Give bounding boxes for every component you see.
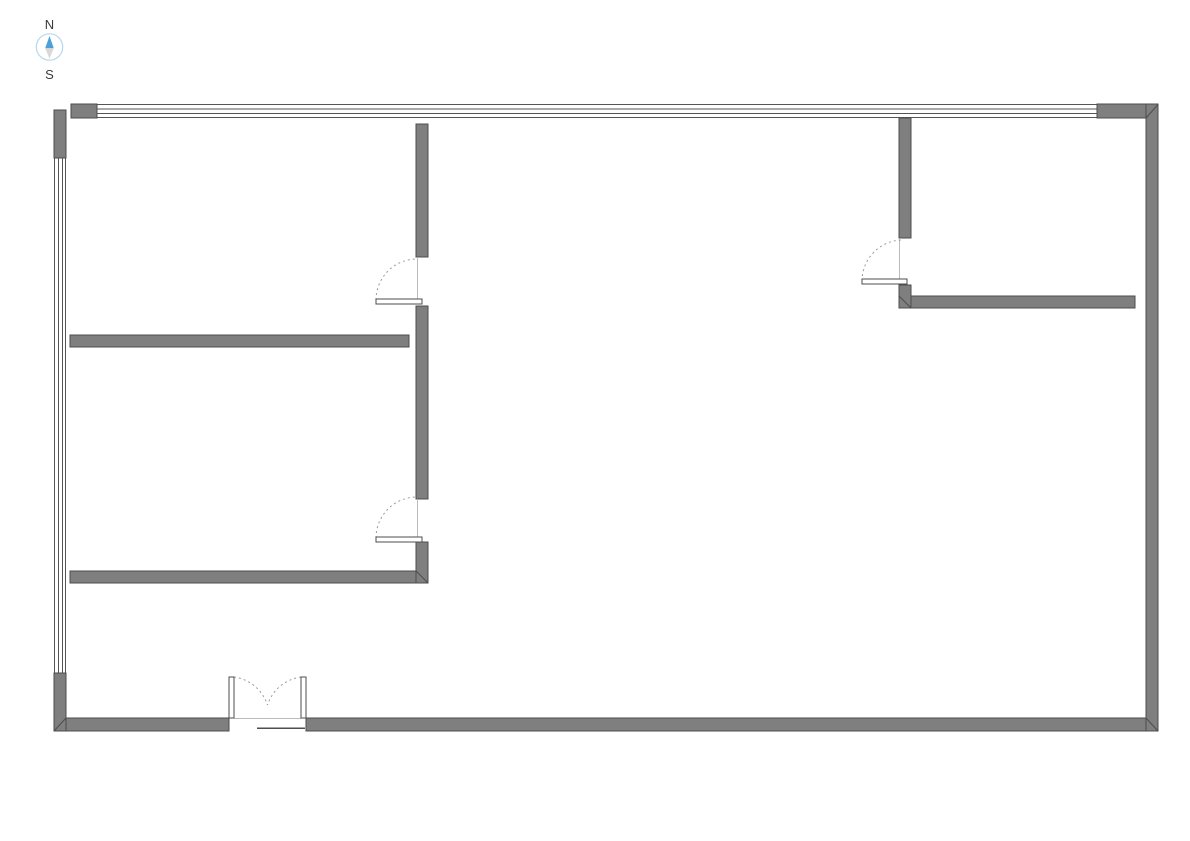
compass-south-arrow-icon xyxy=(45,48,54,59)
door-leaf xyxy=(862,279,907,284)
door-swing-arc-left xyxy=(234,677,268,705)
divider-wall-upper-segment xyxy=(416,124,428,257)
compass-north-label: N xyxy=(45,17,54,32)
door-leaf xyxy=(376,537,422,542)
right-room-west-wall-upper xyxy=(899,118,911,238)
exterior-walls xyxy=(54,104,1158,731)
wall-left-top-segment xyxy=(54,110,66,158)
upper-left-room-door xyxy=(376,257,422,304)
right-room-west-wall-stub xyxy=(899,285,911,308)
lower-left-room-door xyxy=(376,497,422,542)
compass-south-label: S xyxy=(45,67,54,82)
compass-north-arrow-icon xyxy=(45,36,54,48)
lower-left-room-south-wall xyxy=(70,571,416,583)
door-leaf xyxy=(376,299,422,304)
door-swing-arc-right xyxy=(268,677,302,705)
door-swing-arc xyxy=(376,259,417,300)
right-room-door xyxy=(862,238,907,284)
entrance-double-door xyxy=(229,677,306,728)
top-window-strip xyxy=(98,105,1097,118)
miter-joints xyxy=(55,105,1159,731)
left-rooms-partition-wall xyxy=(70,335,409,347)
interior-walls xyxy=(70,118,1135,583)
floor-plan-drawing: N S xyxy=(0,0,1190,841)
wall-bottom-left-segment xyxy=(66,718,229,731)
right-room-south-wall xyxy=(911,296,1135,308)
door-swing-arc xyxy=(862,240,903,281)
divider-wall-middle-segment xyxy=(416,306,428,499)
wall-top-left-cap xyxy=(71,104,97,118)
floor-plan-canvas[interactable]: N S xyxy=(0,0,1190,841)
left-window-strip xyxy=(55,158,66,673)
wall-top-right-cap xyxy=(1097,104,1146,118)
wall-bottom-right-segment xyxy=(306,718,1146,731)
door-leaf-right xyxy=(301,677,306,718)
wall-left-bottom-segment xyxy=(54,673,66,731)
compass: N S xyxy=(36,17,62,82)
door-swing-arc xyxy=(376,497,417,538)
wall-right xyxy=(1146,104,1158,731)
door-leaf-left xyxy=(229,677,234,718)
